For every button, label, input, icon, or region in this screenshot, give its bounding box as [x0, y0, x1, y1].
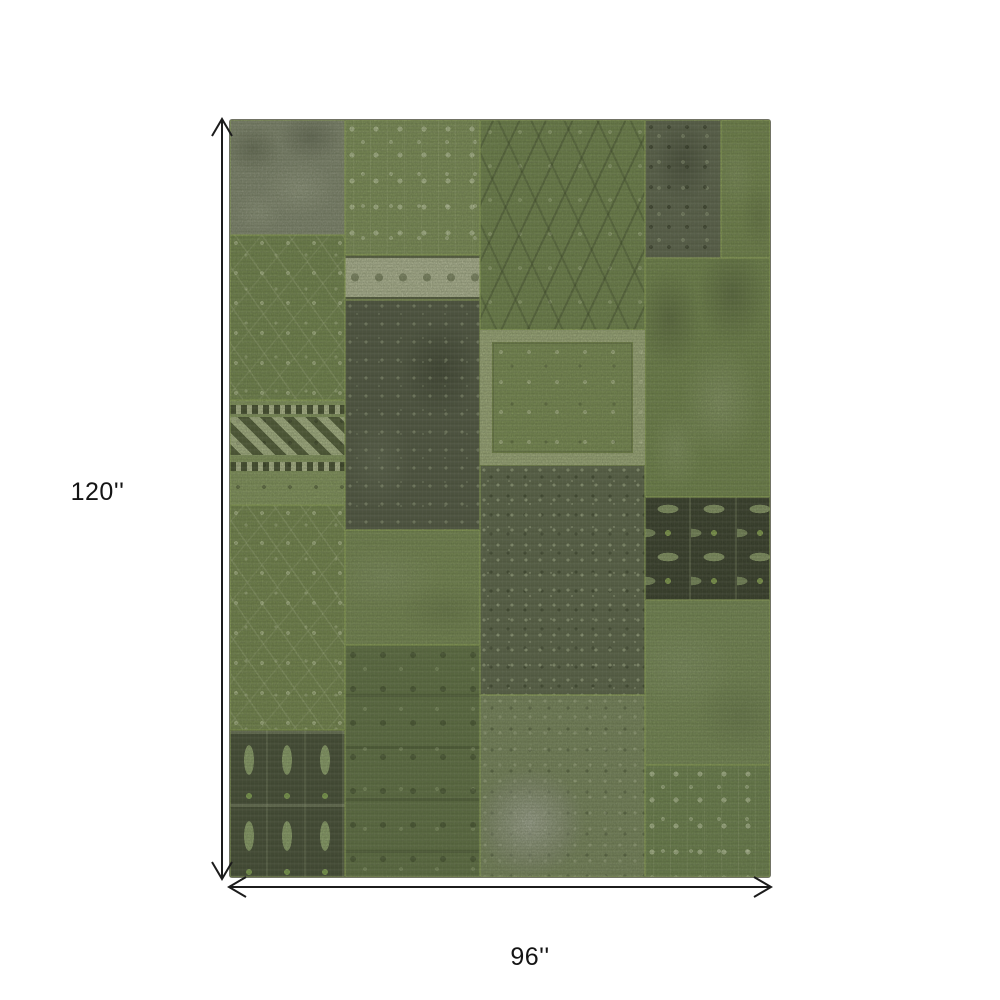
rug-patch-left-floral-vines	[230, 505, 345, 730]
rug-patch-mid-right-swirl	[480, 120, 645, 330]
rug-patch-right-black-geometric	[645, 497, 770, 600]
rug-patch-mid-left-dark-gray	[345, 300, 480, 530]
rug-patch-right-bottom-floral	[645, 765, 770, 877]
rug-patch-mid-left-plain-green	[345, 530, 480, 645]
rug-patch-mid-right-gray-blob	[480, 695, 645, 877]
rug-patch-right-top-dark-ornate	[645, 120, 721, 258]
rug-patch-mid-left-cream-band	[345, 255, 480, 300]
rug-patch-right-mottled-green	[645, 258, 770, 497]
height-dimension-label: 120''	[40, 478, 155, 507]
rug-patches	[230, 120, 770, 877]
rug-patch-left-top-gray	[230, 120, 345, 235]
rug-patch-left-kilim-band	[230, 400, 345, 505]
width-arrow	[229, 877, 771, 897]
rug-patch-right-top-green	[721, 120, 770, 258]
rug-patch-mid-right-framed-floral	[480, 330, 645, 466]
rug-patch-right-plain-green	[645, 600, 770, 765]
rug-patch-mid-left-dense-floral	[345, 645, 480, 877]
rug-image	[230, 120, 770, 877]
rug-patch-left-turkmen	[230, 730, 345, 877]
rug-patch-mid-left-floral-light	[345, 120, 480, 255]
rug-patch-left-floral-upper	[230, 235, 345, 400]
width-dimension-label: 96''	[470, 943, 590, 972]
height-arrow	[212, 119, 232, 879]
product-dimension-diagram: 120'' 96''	[0, 0, 1000, 1000]
rug-patch-mid-right-speckled-dark	[480, 465, 645, 695]
